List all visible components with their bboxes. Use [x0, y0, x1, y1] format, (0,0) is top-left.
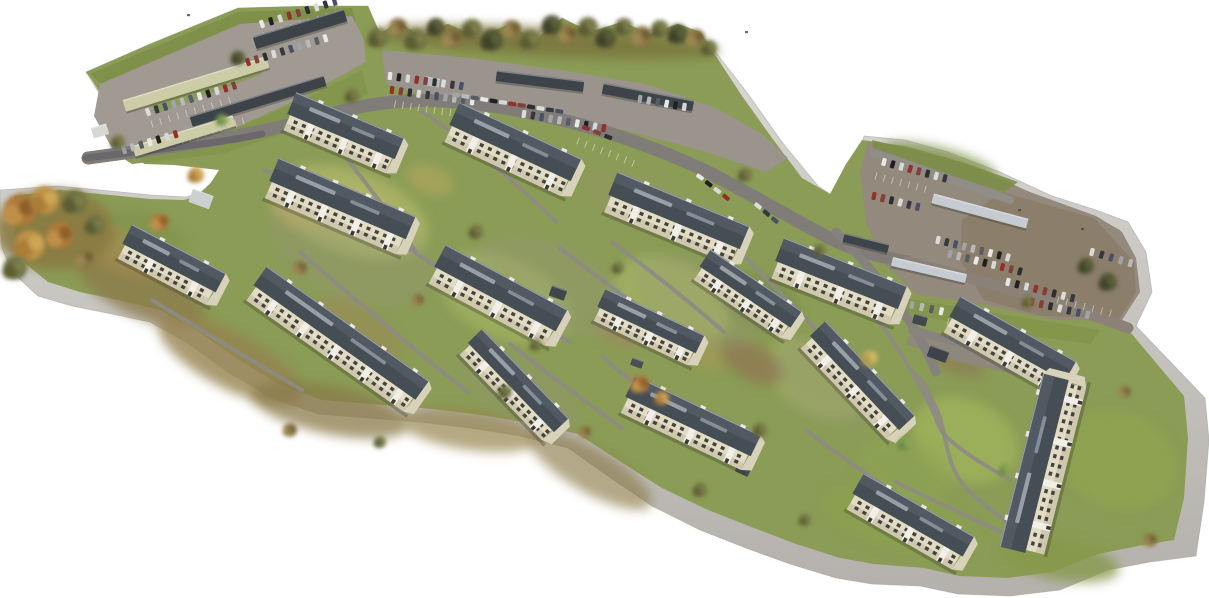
tree — [502, 20, 521, 38]
tree — [461, 19, 482, 39]
parked-car — [434, 92, 439, 100]
model-stage — [0, 0, 1209, 598]
parked-car — [389, 86, 394, 94]
tree — [426, 18, 445, 36]
tree — [2, 256, 27, 280]
mesh-debris-speck — [187, 14, 190, 16]
tree — [614, 18, 633, 36]
mesh-debris-speck — [1081, 228, 1084, 230]
tree — [541, 15, 562, 35]
tree — [577, 17, 598, 37]
tree — [650, 20, 669, 38]
tree — [283, 423, 297, 437]
mesh-debris-speck — [745, 31, 748, 33]
parked-car — [432, 78, 437, 86]
photogrammetry-3d-model-canvas[interactable] — [0, 0, 1209, 598]
parked-car — [387, 72, 392, 80]
tree — [187, 167, 204, 183]
tree — [388, 18, 407, 36]
mesh-debris-speck — [1018, 209, 1021, 211]
parked-car — [332, 0, 338, 6]
